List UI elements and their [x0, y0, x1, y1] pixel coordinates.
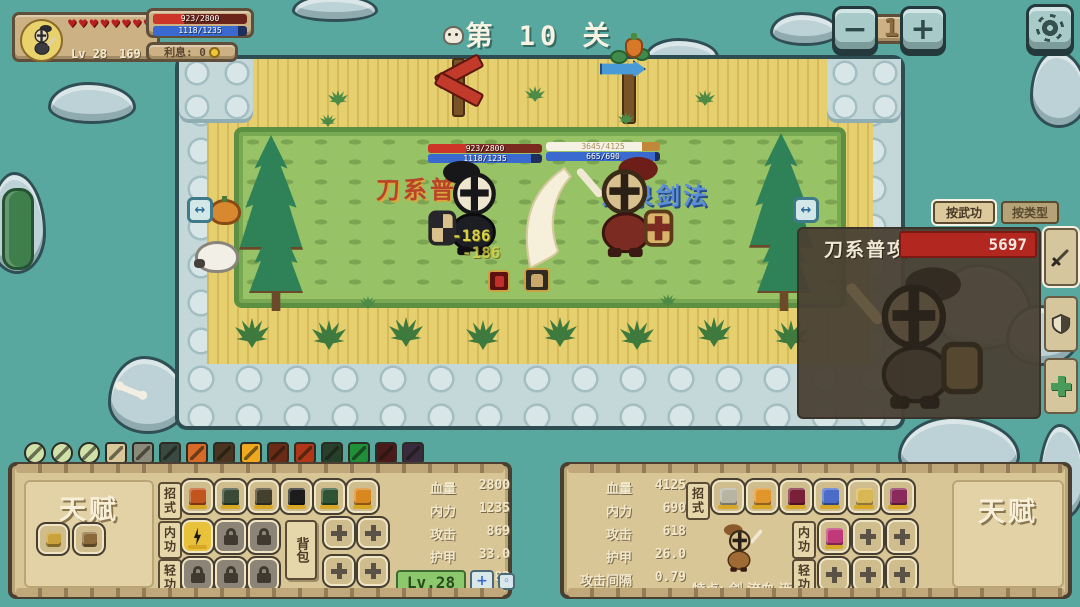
enemy-move-slot-3[interactable]	[780, 480, 812, 513]
stat-value: 618	[642, 524, 686, 543]
hp-bar: 923/2800	[153, 14, 247, 24]
bag-button[interactable]: 背包	[285, 520, 317, 580]
player-board: 天赋 招式 内功 背包 轻功 血量2800 内力1235 攻击869 护甲33.…	[8, 462, 512, 599]
mp-bar: 1118/1235	[153, 26, 247, 36]
purple-card-icon[interactable]	[402, 442, 424, 464]
buff-icon-blood[interactable]	[488, 270, 510, 292]
sword-icon	[1050, 246, 1072, 268]
filter-heal-button[interactable]	[1044, 358, 1078, 414]
dark-red-card-icon[interactable]	[375, 442, 397, 464]
portal-right-icon[interactable]: ↔	[793, 197, 819, 223]
heart-icon: ♥	[122, 17, 131, 32]
damage-row-bar: 5697	[899, 231, 1037, 258]
stage-title: 第 10 关	[430, 14, 650, 53]
mp-bar-text: 1118/1235	[153, 26, 247, 36]
rock	[292, 0, 378, 22]
enemy-empty-slot[interactable]	[853, 520, 883, 553]
enemy-empty-slot[interactable]	[819, 558, 849, 591]
stat-value: 2800	[466, 478, 510, 497]
empty-slot[interactable]	[324, 518, 354, 548]
player-hud: ♥♥♥♥♥♥♥♥♥♥♥♥ Lv 28 169	[12, 12, 160, 62]
settings-button[interactable]	[1026, 4, 1074, 52]
stat-label: 血量	[430, 478, 456, 497]
player-avatar[interactable]	[20, 19, 63, 62]
enemy-move-slot-5[interactable]	[848, 480, 880, 513]
enemy-traits: 特点: 剑 流血 连击	[692, 578, 806, 598]
stat-label: 内力	[606, 501, 632, 520]
buff-icon-unit[interactable]	[524, 268, 550, 292]
stat-label: 攻击	[606, 524, 632, 543]
stat-label: 内力	[430, 501, 456, 520]
plant	[2, 188, 34, 270]
poison-pot-card-icon[interactable]	[321, 442, 343, 464]
swirl-card-icon[interactable]	[159, 442, 181, 464]
fire-burst-card-icon[interactable]	[267, 442, 289, 464]
bolt-orb-icon[interactable]	[24, 442, 46, 464]
right-knight-sprite	[576, 154, 676, 264]
slash-card-icon[interactable]	[294, 442, 316, 464]
damage-row-skill: 刀系普攻	[824, 235, 908, 262]
sheep	[195, 241, 239, 273]
light-skill-label: 轻功	[158, 559, 182, 597]
inner-slot-locked[interactable]	[248, 520, 279, 553]
move-slot-5[interactable]	[314, 480, 345, 513]
cross-swords-card-icon[interactable]	[213, 442, 235, 464]
enemy-knight-sprite	[716, 522, 762, 574]
bolt-card-icon[interactable]	[105, 442, 127, 464]
stat-label: 攻击间隔	[580, 570, 632, 589]
level-info-button[interactable]: ◦	[498, 573, 515, 590]
move-slot-3[interactable]	[248, 480, 279, 513]
move-slot-4[interactable]	[281, 480, 312, 513]
stat-value: 869	[466, 524, 510, 543]
knight-avatar-icon	[27, 24, 57, 57]
ghost-knight-sprite	[831, 263, 1001, 413]
sun-burst-card-icon[interactable]	[240, 442, 262, 464]
heart-icon: ♥	[133, 17, 142, 32]
inner-power-label: 内功	[158, 521, 182, 559]
stat-value: 26.0	[642, 547, 686, 566]
portal-left-icon[interactable]: ↔	[187, 197, 213, 223]
moves-label: 招式	[158, 482, 182, 520]
stone-corner	[827, 59, 901, 123]
stat-value: 690	[642, 501, 686, 520]
talent-slot[interactable]	[74, 524, 104, 554]
pot-card-icon[interactable]	[132, 442, 154, 464]
stat-label: 血量	[606, 478, 632, 497]
level-badge: Lv.28	[396, 570, 466, 594]
speed-plus-button[interactable]: +	[900, 6, 946, 52]
heart-icon: ♥	[68, 17, 77, 32]
enemy-move-slot-2[interactable]	[746, 480, 778, 513]
sword-slash-effect	[496, 166, 586, 276]
stat-value: 0.79	[642, 570, 686, 589]
damage-popup: -186	[462, 243, 501, 262]
move-slot-6[interactable]	[347, 480, 378, 513]
rock	[770, 12, 840, 46]
enemy-board: 血量4125 内力690 攻击618 护甲26.0 攻击间隔0.79 特点: 剑…	[560, 462, 1072, 599]
enemy-inner-slot-1[interactable]	[819, 520, 849, 553]
empty-slot[interactable]	[324, 556, 354, 586]
light-slot-locked[interactable]	[182, 558, 213, 591]
stat-label: 护甲	[430, 547, 456, 566]
interest-label: 利息: 0	[164, 44, 206, 60]
move-slot-2[interactable]	[215, 480, 246, 513]
stat-value: 1235	[466, 501, 510, 520]
inner-power-label: 内功	[792, 521, 816, 559]
enemy-move-slot-1[interactable]	[712, 480, 744, 513]
tab-by-type[interactable]: 按类型	[1001, 201, 1059, 224]
heart-icon: ♥	[100, 17, 109, 32]
hud-bars: 923/2800 1118/1235	[146, 8, 254, 38]
heart-icon: ♥	[79, 17, 88, 32]
stat-label: 攻击	[430, 524, 456, 543]
interest-box: 利息: 0	[146, 42, 238, 62]
heart-icon: ♥	[111, 17, 120, 32]
explosion-card-icon[interactable]	[186, 442, 208, 464]
light-slot-locked[interactable]	[248, 558, 279, 591]
talent-panel: 天赋	[24, 480, 154, 588]
rock	[1030, 50, 1080, 128]
skill-toolbar	[24, 442, 424, 464]
talent-title: 天赋	[26, 488, 152, 527]
filter-sword-button[interactable]	[1044, 228, 1078, 286]
rock	[48, 82, 136, 124]
filter-shield-button[interactable]	[1044, 296, 1078, 352]
enemy-empty-slot[interactable]	[887, 520, 917, 553]
stone-corner	[179, 59, 253, 123]
right-hp-text: 3645/4125	[546, 142, 660, 151]
moves-label: 招式	[686, 482, 710, 520]
heart-icon: ♥	[90, 17, 99, 32]
level-up-button[interactable]: +	[470, 570, 494, 592]
inner-slot-1[interactable]	[182, 520, 213, 553]
enemy-empty-slot[interactable]	[887, 558, 917, 591]
swirl-orb-icon[interactable]	[78, 442, 100, 464]
pumpkin	[209, 199, 241, 225]
speed-minus-button[interactable]: −	[832, 6, 878, 52]
green-ring-card-icon[interactable]	[348, 442, 370, 464]
player-level: Lv 28	[71, 47, 107, 61]
light-skill-label: 轻功	[792, 559, 816, 597]
coin-icon	[209, 47, 220, 58]
heal-plus-icon	[1051, 376, 1071, 396]
left-hp-text: 923/2800	[428, 144, 542, 153]
tab-by-skill[interactable]: 按武功	[933, 201, 995, 224]
enemy-talent-title: 天赋	[954, 490, 1062, 529]
light-slot-locked[interactable]	[215, 558, 246, 591]
stat-value: 4125	[642, 478, 686, 497]
hp-bar-text: 923/2800	[153, 14, 247, 24]
damage-row-value: 5697	[988, 235, 1027, 254]
shield-icon	[1051, 313, 1071, 335]
enemy-move-slot-6[interactable]	[882, 480, 914, 513]
gear-icon	[1036, 14, 1064, 42]
move-slot-1[interactable]	[182, 480, 213, 513]
speed-value: 1	[880, 13, 902, 42]
talent-slot[interactable]	[38, 524, 68, 554]
stat-label: 护甲	[606, 547, 632, 566]
game-screen: ↔ ↔ ♥♥♥♥♥♥♥♥♥♥♥♥ L	[0, 0, 1080, 607]
enemy-empty-slot[interactable]	[853, 558, 883, 591]
pot-orb-icon[interactable]	[51, 442, 73, 464]
stat-value: 33.0	[466, 547, 510, 566]
enemy-move-slot-4[interactable]	[814, 480, 846, 513]
enemy-stats: 血量4125 内力690 攻击618 护甲26.0 攻击间隔0.79	[576, 478, 686, 589]
enemy-talent-panel: 天赋	[952, 480, 1064, 588]
inner-slot-locked[interactable]	[215, 520, 246, 553]
